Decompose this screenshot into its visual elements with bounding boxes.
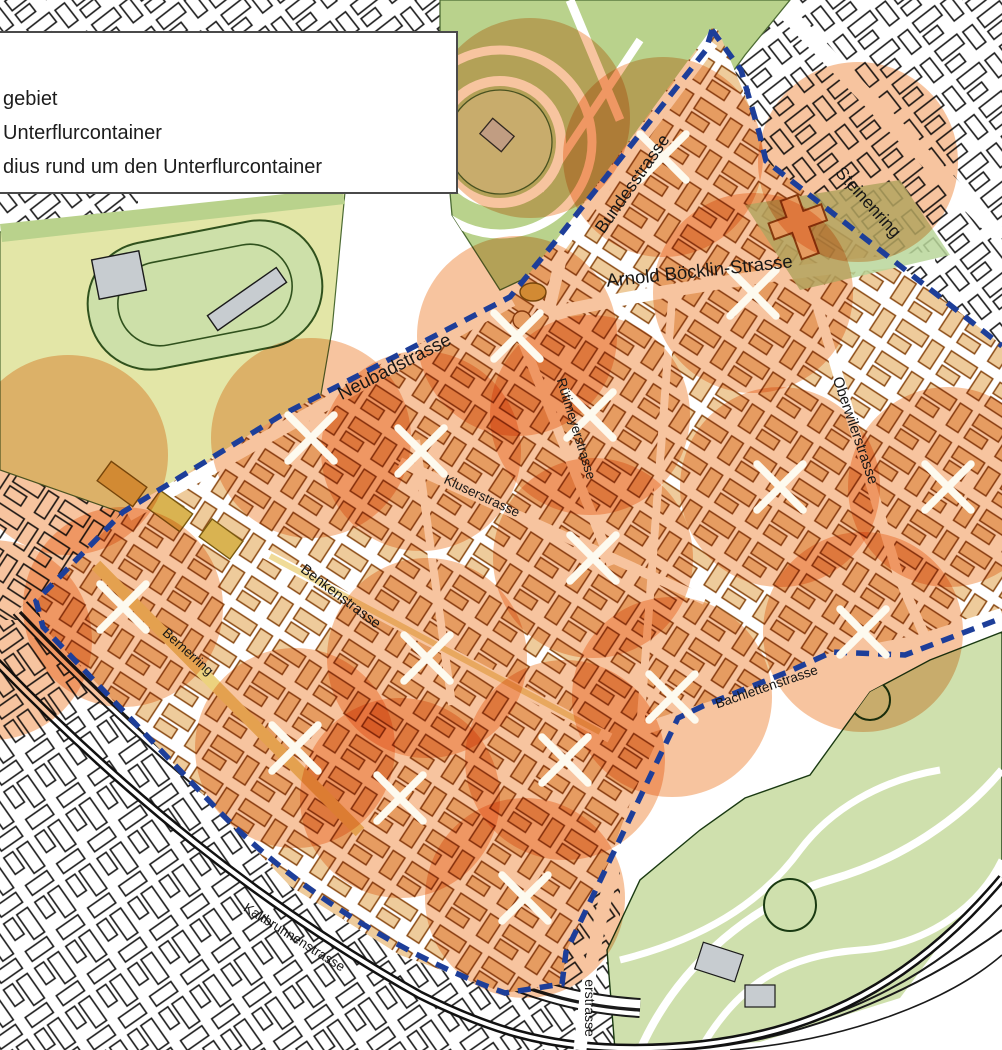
park-building xyxy=(745,985,775,1007)
coverage-circle xyxy=(758,62,958,262)
street-label-erstrasse: erstrasse xyxy=(582,979,598,1037)
legend-line-unterflurcontainer: Unterflurcontainer xyxy=(3,122,162,144)
legend-line-pilotgebiet: gebiet xyxy=(3,88,58,110)
coverage-circle xyxy=(430,18,630,218)
field-building xyxy=(92,251,147,299)
map-root: Bundesstrasse Steinenring Arnold Böcklin… xyxy=(0,0,1002,1050)
map-screenshot: Bundesstrasse Steinenring Arnold Böcklin… xyxy=(0,0,1002,1050)
legend-line-radius: dius rund um den Unterflurcontainer xyxy=(3,156,322,178)
legend-panel: gebiet Unterflurcontainer dius rund um d… xyxy=(0,32,457,193)
